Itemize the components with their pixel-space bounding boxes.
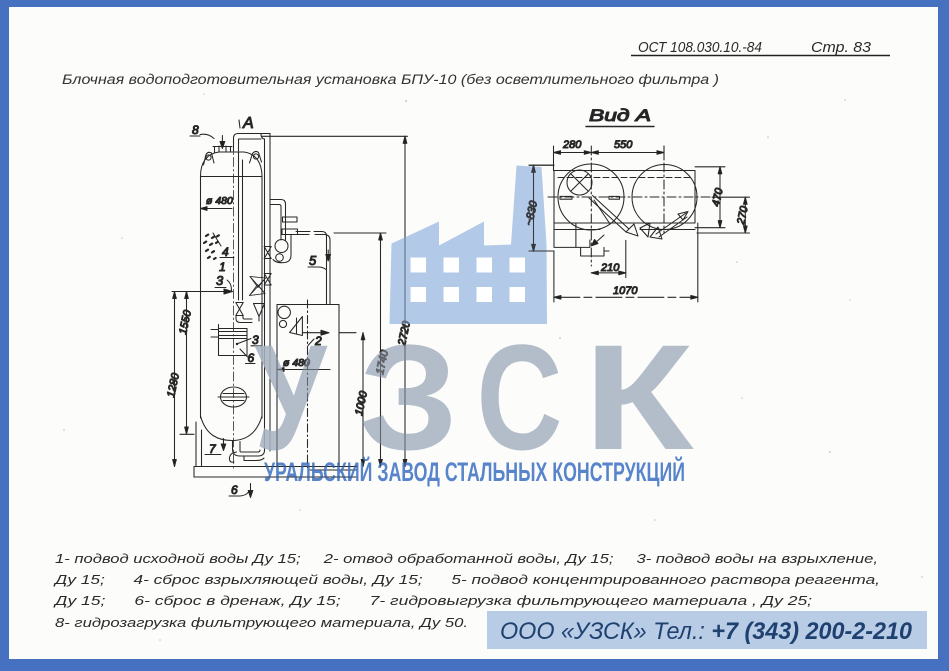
svg-text:280: 280	[562, 139, 582, 151]
svg-text:У: У	[255, 313, 328, 481]
svg-text:8: 8	[192, 123, 199, 137]
svg-text:270: 270	[735, 204, 751, 226]
svg-text:ОСТ 108.030.10.-84: ОСТ 108.030.10.-84	[638, 40, 762, 56]
svg-text:7: 7	[209, 442, 217, 456]
svg-text:1070: 1070	[613, 285, 638, 297]
svg-text:Стр. 83: Стр. 83	[811, 40, 871, 56]
svg-text:К: К	[584, 313, 695, 481]
svg-text:8- гидрозагрузка фильтрующего: 8- гидрозагрузка фильтрующего материала,…	[55, 615, 468, 630]
svg-text:210: 210	[600, 262, 620, 274]
svg-text:1550: 1550	[177, 308, 194, 335]
svg-text:С: С	[477, 313, 563, 481]
svg-text:4: 4	[222, 245, 229, 259]
svg-text:Ду 15; 4- сброс взрыхляю: Ду 15; 4- сброс взрыхляющей воды, Ду 15;…	[52, 572, 880, 587]
svg-text:1- подвод исходной воды Ду: 1- подвод исходной воды Ду 15; 2- отвод …	[55, 551, 878, 566]
svg-text:1280: 1280	[165, 371, 182, 398]
svg-text:Вид А: Вид А	[589, 107, 651, 125]
svg-text:ø 480: ø 480	[206, 195, 233, 207]
svg-text:5: 5	[309, 253, 317, 268]
svg-text:ООО «УЗСК» Тел.: +7 (343) 200-: ООО «УЗСК» Тел.: +7 (343) 200-2-210	[500, 618, 912, 645]
svg-text:1: 1	[219, 260, 226, 274]
svg-text:6: 6	[231, 483, 238, 497]
svg-text:6: 6	[248, 351, 255, 365]
svg-text:А: А	[242, 115, 254, 132]
svg-text:550: 550	[614, 139, 633, 151]
svg-text:УРАЛЬСКИЙ ЗАВОД СТАЛЬНЫХ КОНСТ: УРАЛЬСКИЙ ЗАВОД СТАЛЬНЫХ КОНСТРУКЦИЙ	[264, 456, 685, 487]
svg-text:Блочная водоподготовительная: Блочная водоподготовительная установка Б…	[62, 72, 719, 87]
svg-text:ø 480: ø 480	[283, 357, 310, 369]
svg-text:3: 3	[216, 273, 224, 288]
svg-text:Ду 15; 6- сброс в дрена: Ду 15; 6- сброс в дренаж, Ду 15; 7- гидр…	[52, 593, 812, 608]
